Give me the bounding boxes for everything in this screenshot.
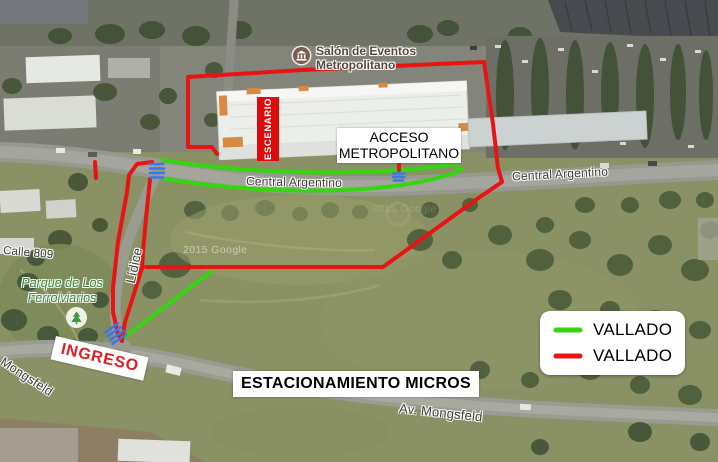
estacionamiento-micros-label: ESTACIONAMIENTO MICROS	[233, 371, 479, 397]
estacionamiento-text: ESTACIONAMIENTO MICROS	[241, 375, 471, 392]
event-venue-icon	[293, 47, 310, 64]
green-line-swatch	[553, 326, 583, 334]
poi-salon-label: Salón de Eventos Metropolitano	[316, 44, 416, 72]
legend-row-red: VALLADO	[553, 346, 672, 366]
escenario-label: ESCENARIO	[257, 97, 279, 161]
vallado-legend: VALLADO VALLADO	[540, 311, 685, 375]
event-site-map: 2015 Google 2015 Google Salón de Eventos…	[0, 0, 718, 462]
escenario-text: ESCENARIO	[263, 98, 274, 160]
google-watermark: 2015 Google	[183, 244, 248, 256]
red-line-swatch	[553, 352, 583, 360]
poi-salon-de-eventos: Salón de Eventos Metropolitano	[293, 44, 416, 72]
legend-row-green: VALLADO	[553, 320, 672, 340]
acceso-metropolitano-label: ACCESO METROPOLITANO	[337, 128, 461, 163]
street-central-argentino: Central Argentino	[246, 174, 342, 190]
vallado-red-line	[95, 62, 502, 341]
google-watermark: 2015 Google	[372, 203, 437, 215]
gate-marker-acceso	[393, 174, 404, 181]
tree-icon	[66, 307, 87, 328]
gate-marker-central	[150, 164, 164, 178]
poi-parque-ferroviarios: Parque de Los Ferroiviarios	[14, 276, 110, 306]
legend-label-green: VALLADO	[593, 320, 672, 340]
acceso-line1: ACCESO	[369, 129, 428, 145]
acceso-line2: METROPOLITANO	[339, 145, 459, 161]
legend-label-red: VALLADO	[593, 346, 672, 366]
